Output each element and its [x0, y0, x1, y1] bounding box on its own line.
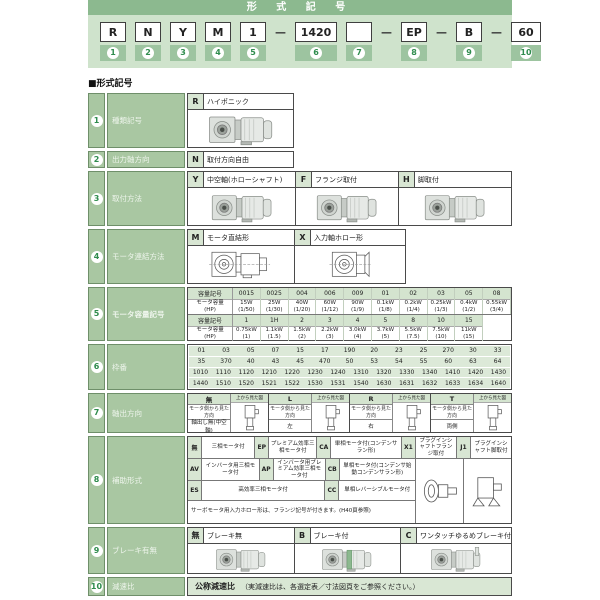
frame-number: 1330: [395, 369, 418, 376]
frame-number: 05: [238, 347, 263, 354]
row-num-4: 4: [91, 251, 103, 263]
option-desc: ハイポニック: [204, 94, 293, 109]
view-from-motor-label: モータ側から見た方向: [269, 405, 311, 420]
top-view-label: 上から見た図: [474, 394, 511, 403]
page-title: 形 式 記 号: [88, 0, 512, 15]
code-chip-B: B: [295, 528, 311, 543]
dash-separator: —: [381, 26, 392, 39]
frame-number: 1010: [189, 369, 212, 376]
code-num-3: 3: [177, 47, 189, 59]
row-type-code: 1 種類記号 Rハイポニック: [88, 93, 512, 148]
shaft-direction-option: 無 モータ側から見た方向 軸出し無(中空軸) 上から見た図: [188, 394, 269, 432]
model-code-row: R1 N2 Y3 M4 15 — 14206 7 — EP8 — B9 — 60…: [88, 15, 512, 61]
code-num-6: 6: [310, 47, 322, 59]
capacity-table-large: 容量記号 モータ容量(HP) 1 0.75kW(1) 1H 1.1kW(1.5)…: [188, 315, 511, 341]
option-desc: フランジ取付: [312, 172, 398, 187]
frame-number: 1520: [235, 380, 258, 387]
row-num-3: 3: [91, 193, 103, 205]
code-box-8: EP8: [401, 22, 427, 61]
row-auxiliary-type: 8 補助形式 無三相モータ付 EPプレミアム効率三相モータ付 CA単相モータ付(…: [88, 436, 512, 524]
shaft-top-view-diagram: [238, 403, 262, 432]
frame-number: 60: [436, 358, 461, 365]
aux-option-none: 無三相モータ付: [188, 437, 255, 458]
code-box-2: N2: [135, 22, 161, 61]
auxiliary-table: 無三相モータ付 EPプレミアム効率三相モータ付 CA単相モータ付(コンデンサラン…: [187, 436, 512, 524]
row-label-7: 軸出方向: [107, 393, 185, 433]
option-with-brake: Bブレーキ付: [295, 527, 402, 574]
frame-number: 1440: [189, 380, 212, 387]
capacity-column: 08 0.55kW(3/4): [483, 288, 511, 314]
frame-number: 370: [214, 358, 239, 365]
shaft-top-view-diagram: [481, 403, 505, 432]
row-num-8: 8: [91, 474, 103, 486]
option-desc: 取付方向自由: [204, 152, 293, 167]
frame-number: 1530: [304, 380, 327, 387]
dash-separator: —: [436, 26, 447, 39]
capacity-code-header: 容量記号: [188, 288, 232, 300]
option-input-hollow: X入力軸ホロー形: [295, 229, 406, 284]
code-chip-brake-none: 無: [188, 528, 204, 543]
code-num-8: 8: [408, 47, 420, 59]
row-label-2: 出力軸方向: [107, 151, 185, 168]
frame-number: 03: [214, 347, 239, 354]
capacity-value-header: モータ容量(HP): [188, 300, 232, 314]
view-from-motor-label: モータ側から見た方向: [431, 405, 473, 420]
gearmotor-photo: [188, 188, 295, 225]
frame-number: 64: [485, 358, 510, 365]
shaft-top-view-diagram: [319, 403, 343, 432]
frame-number: 190: [337, 347, 362, 354]
row-brake: 9 ブレーキ有無 無ブレーキ無 Bブレーキ付 Cワンタッチゆるめブレーキ付: [88, 527, 512, 574]
option-hyponic: Rハイポニック: [187, 93, 294, 148]
gearmotor-photo: [296, 188, 398, 225]
capacity-column: 009 90W(1/9): [344, 288, 372, 314]
code-num-4: 4: [212, 47, 224, 59]
frame-number: 63: [461, 358, 486, 365]
frame-number: 1240: [327, 369, 350, 376]
frame-number: 30: [461, 347, 486, 354]
frame-number: 01: [189, 347, 214, 354]
capacity-column: 8 5.5kW(7.5): [400, 315, 428, 341]
code-num-9: 9: [463, 47, 475, 59]
code-num-5: 5: [247, 47, 259, 59]
frame-number: 45: [288, 358, 313, 365]
code-box-10: 6010: [511, 22, 541, 61]
top-view-label: 上から見た図: [231, 394, 268, 403]
frame-number: 23: [387, 347, 412, 354]
row-label-1: 種類記号: [107, 93, 185, 148]
shaft-code: T: [431, 394, 473, 405]
dash-separator: —: [491, 26, 502, 39]
row-num-10: 10: [91, 581, 103, 593]
option-foot-mount: H脚取付: [399, 171, 512, 226]
capacity-column: 004 40W(1/20): [289, 288, 317, 314]
shaft-value: 左: [269, 420, 311, 432]
option-no-brake: 無ブレーキ無: [187, 527, 295, 574]
capacity-column: 4 3.0kW(4): [344, 315, 372, 341]
capacity-column: 03 0.25kW(1/3): [428, 288, 456, 314]
row-label-5: モータ容量記号: [107, 287, 185, 341]
top-view-label: 上から見た図: [393, 394, 430, 403]
capacity-column: 05 0.4kW(1/2): [455, 288, 483, 314]
aux-option-CB: CB単相モータ付(コンデンサ始動コンデンサラン形): [326, 459, 415, 480]
frame-number: 270: [436, 347, 461, 354]
frame-number: 53: [362, 358, 387, 365]
shaft-direction-option: R モータ側から見た方向 右 上から見た図: [350, 394, 431, 432]
row-motor-coupling: 4 モータ連結方法 Mモータ直結形 X入力軸ホロー形: [88, 229, 512, 284]
frame-number: 1340: [418, 369, 441, 376]
code-chip-C: C: [401, 528, 417, 543]
frame-number: 35: [189, 358, 214, 365]
shaft-value: 軸出し無(中空軸): [188, 420, 230, 432]
option-desc: 入力軸ホロー形: [311, 230, 405, 245]
frame-number: 1632: [418, 380, 441, 387]
frame-number: 33: [485, 347, 510, 354]
capacity-table: 容量記号 モータ容量(HP) 0015 15W(1/50) 0025 25W(1…: [187, 287, 512, 341]
code-num-2: 2: [142, 47, 154, 59]
gearmotor-photo: [188, 544, 294, 573]
frame-number: 1230: [304, 369, 327, 376]
frame-number: 1320: [372, 369, 395, 376]
aux-option-EP: EPプレミアム効率三相モータ付: [255, 437, 317, 458]
frame-number-grid: 0103050715171902023252703033 35370404345…: [187, 344, 512, 390]
frame-number: 1310: [349, 369, 372, 376]
row-num-5: 5: [91, 308, 103, 320]
row-output-shaft-direction: 2 出力軸方向 N取付方向自由: [88, 151, 512, 168]
option-free-mounting: N取付方向自由: [187, 151, 294, 168]
shaft-direction-option: L モータ側から見た方向 左 上から見た図: [269, 394, 350, 432]
reduction-ratio-text: 公称減速比 （実減速比は、各選定表／寸法図頁をご参照ください。）: [187, 577, 512, 596]
row-label-10: 減速比: [107, 577, 185, 596]
view-from-motor-label: モータ側から見た方向: [350, 405, 392, 420]
top-view-label: 上から見た図: [312, 394, 349, 403]
option-desc: モータ直結形: [204, 230, 294, 245]
gearmotor-photo: [295, 544, 401, 573]
capacity-column: 1 0.75kW(1): [233, 315, 261, 341]
hollow-input-line-drawing: [295, 246, 405, 283]
frame-number: 07: [263, 347, 288, 354]
option-desc: 中空軸(ホローシャフト): [204, 172, 295, 187]
row-shaft-direction: 7 軸出方向 無 モータ側から見た方向 軸出し無(中空軸) 上から見た図 L: [88, 393, 512, 433]
frame-number: 1510: [212, 380, 235, 387]
code-box-6: 14206: [295, 22, 337, 61]
frame-number: 1521: [258, 380, 281, 387]
capacity-column: 5 3.7kW(5): [372, 315, 400, 341]
frame-number: 50: [337, 358, 362, 365]
capacity-column: 1H 1.1kW(1.5): [261, 315, 289, 341]
motor-line-drawing: [188, 246, 294, 283]
code-box-3: Y3: [170, 22, 196, 61]
code-chip-H: H: [399, 172, 415, 187]
section-title: ■形式記号: [88, 76, 512, 89]
row-num-2: 2: [91, 154, 103, 166]
code-num-1: 1: [107, 47, 119, 59]
code-chip-M: M: [188, 230, 204, 245]
plug-in-shaft-foot-drawing: [464, 458, 511, 523]
capacity-column: 01 0.1kW(1/8): [372, 288, 400, 314]
capacity-column: 2 1.5kW(2): [289, 315, 317, 341]
code-chip-N: N: [188, 152, 204, 167]
frame-number: 1120: [235, 369, 258, 376]
frame-number: 1220: [281, 369, 304, 376]
row-label-3: 取付方法: [107, 171, 185, 226]
plug-in-shaft-flange-drawing: [416, 458, 464, 523]
capacity-column: 15 11kW(15): [455, 315, 483, 341]
dash-separator: —: [275, 26, 286, 39]
frame-number: 1633: [441, 380, 464, 387]
row-label-9: ブレーキ有無: [107, 527, 185, 574]
code-chip-Y: Y: [188, 172, 204, 187]
shaft-direction-grid: 無 モータ側から見た方向 軸出し無(中空軸) 上から見た図 L モータ側から見た…: [187, 393, 512, 433]
row-reduction-ratio: 10 減速比 公称減速比 （実減速比は、各選定表／寸法図頁をご参照ください。）: [88, 577, 512, 596]
code-box-1: R1: [100, 22, 126, 61]
row-num-7: 7: [91, 407, 103, 419]
frame-number: 20: [362, 347, 387, 354]
code-num-10: 10: [520, 47, 532, 59]
code-chip-X: X: [295, 230, 311, 245]
code-box-4: M4: [205, 22, 231, 61]
row-motor-capacity: 5 モータ容量記号 容量記号 モータ容量(HP) 0015 15W(1/50) …: [88, 287, 512, 341]
capacity-table-small: 容量記号 モータ容量(HP) 0015 15W(1/50) 0025 25W(1…: [188, 288, 511, 315]
frame-number: 15: [288, 347, 313, 354]
row-label-8: 補助形式: [107, 436, 185, 524]
option-hollow-shaft: Y中空軸(ホローシャフト): [187, 171, 296, 226]
frame-number: 1410: [441, 369, 464, 376]
code-box-5: 15: [240, 22, 266, 61]
shaft-code: L: [269, 394, 311, 405]
option-quick-release-brake: Cワンタッチゆるめブレーキ付: [401, 527, 512, 574]
frame-number: 54: [387, 358, 412, 365]
gearmotor-photo: [399, 188, 511, 225]
frame-number: 1634: [464, 380, 487, 387]
frame-number: 470: [312, 358, 337, 365]
row-frame-number: 6 枠番 0103050715171902023252703033 353704…: [88, 344, 512, 390]
code-chip-F: F: [296, 172, 312, 187]
code-box-9: B9: [456, 22, 482, 61]
option-desc: ブレーキ付: [311, 528, 401, 543]
option-flange-mount: Fフランジ取付: [296, 171, 399, 226]
frame-number: 1430: [487, 369, 510, 376]
code-box-7: 7: [346, 22, 372, 61]
option-desc: 脚取付: [415, 172, 511, 187]
frame-number: 1210: [258, 369, 281, 376]
capacity-value-header: モータ容量(HP): [188, 327, 232, 341]
frame-number: 17: [312, 347, 337, 354]
aux-option-CC: CC単相レバーシブルモータ付: [325, 481, 415, 500]
frame-number: 1522: [281, 380, 304, 387]
shaft-code: R: [350, 394, 392, 405]
capacity-column: 02 0.2kW(1/4): [400, 288, 428, 314]
aux-option-AP: APインバータ用プレミアム効率三相モータ付: [260, 459, 326, 480]
gearmotor-photo: [401, 544, 511, 573]
frame-number: 1640: [487, 380, 510, 387]
frame-number: 1631: [395, 380, 418, 387]
gearmotor-photo: [188, 110, 293, 147]
capacity-column: 0025 25W(1/30): [261, 288, 289, 314]
capacity-column: 10 7.5kW(10): [428, 315, 456, 341]
capacity-column: 0015 15W(1/50): [233, 288, 261, 314]
frame-number: 25: [411, 347, 436, 354]
code-chip-R: R: [188, 94, 204, 109]
aux-option-X1: X1プラグインシャフトフランジ取付: [402, 437, 457, 458]
capacity-column: 3 2.2kW(3): [316, 315, 344, 341]
model-code-panel: 形 式 記 号 R1 N2 Y3 M4 15 — 14206 7 — EP8 —…: [88, 0, 512, 68]
aux-option-AV: AVインバータ用三相モータ付: [188, 459, 260, 480]
shaft-direction-option: T モータ側から見た方向 両側 上から見た図: [431, 394, 511, 432]
option-motor-direct: Mモータ直結形: [187, 229, 295, 284]
option-desc: ブレーキ無: [204, 528, 294, 543]
shaft-code: 無: [188, 394, 230, 405]
row-num-6: 6: [91, 361, 103, 373]
shaft-value: 両側: [431, 420, 473, 432]
frame-number: 43: [263, 358, 288, 365]
row-mounting-method: 3 取付方法 Y中空軸(ホローシャフト) Fフランジ取付 H脚取付: [88, 171, 512, 226]
code-num-7: 7: [353, 47, 365, 59]
frame-number: 40: [238, 358, 263, 365]
shaft-value: 右: [350, 420, 392, 432]
shaft-top-view-diagram: [400, 403, 424, 432]
option-desc: ワンタッチゆるめブレーキ付: [417, 528, 511, 543]
capacity-code-header: 容量記号: [188, 315, 232, 327]
frame-number: 1630: [372, 380, 395, 387]
capacity-column: 006 60W(1/12): [316, 288, 344, 314]
row-label-6: 枠番: [107, 344, 185, 390]
row-num-1: 1: [91, 115, 103, 127]
frame-number: 1110: [212, 369, 235, 376]
servo-note: サーボモータ用入力ホロー形は、フランジ記号が付きます。(H40頁参照): [188, 501, 416, 523]
aux-option-CA: CA単相モータ付(コンデンサラン形): [317, 437, 402, 458]
row-num-9: 9: [91, 545, 103, 557]
catalog-page: 形 式 記 号 R1 N2 Y3 M4 15 — 14206 7 — EP8 —…: [88, 0, 512, 596]
row-label-4: モータ連結方法: [107, 229, 185, 284]
aux-option-J1: J1プラグインシャフト脚取付: [457, 437, 511, 458]
frame-number: 1531: [327, 380, 350, 387]
frame-number: 1540: [349, 380, 372, 387]
aux-option-ES: ES高効率三相モータ付: [188, 481, 325, 500]
frame-number: 1420: [464, 369, 487, 376]
frame-number: 55: [411, 358, 436, 365]
